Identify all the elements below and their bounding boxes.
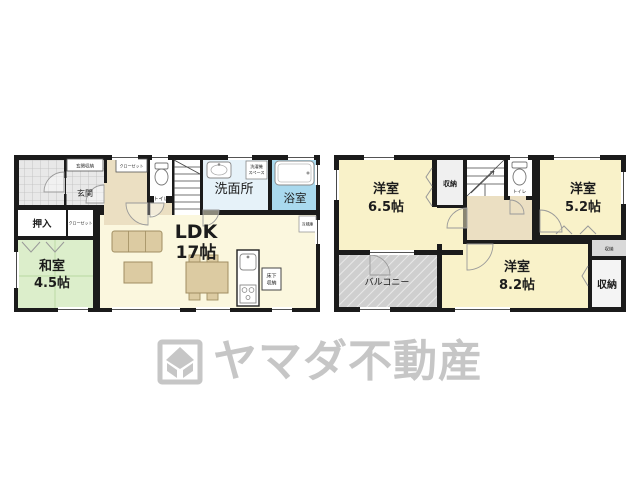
kitchen-counter: [237, 250, 259, 306]
room-6-5-name-label: 洋室: [373, 181, 399, 197]
underfloor-label-1: 床下: [266, 273, 276, 280]
ldk-name-label: LDK: [175, 221, 219, 243]
sink-fixture: [207, 162, 231, 178]
oshiire-label: 押入: [32, 218, 52, 230]
room-5-2-size-label: 5.2帖: [565, 199, 601, 215]
floor2-plan: 洋室 6.5帖 収納 トイレ 洋室 5.2帖 バルコニー 洋室 8.2帖 収納 …: [334, 155, 626, 312]
room-6-5-size-label: 6.5帖: [368, 199, 404, 215]
coffee-table: [124, 262, 152, 283]
floorplan-canvas: 玄関収納 玄関 クローゼット クローゼット 押入 和室 4.5帖 トイレ 洗面所…: [0, 0, 640, 480]
washer-space-label-1: 洗濯機: [250, 163, 263, 170]
floor1-plan: 玄関収納 玄関 クローゼット クローゼット 押入 和室 4.5帖 トイレ 洗面所…: [14, 155, 320, 312]
bathtub-fixture: [275, 161, 314, 185]
washitsu-closet-label: クローゼット: [69, 220, 93, 226]
washitsu-size-label: 4.5帖: [34, 275, 70, 291]
room-8-2-name-label: 洋室: [504, 259, 530, 275]
genkan-storage-label: 玄関収納: [76, 163, 94, 170]
closet-big-label: 収納: [597, 278, 617, 291]
toilet-fixture-1f: [155, 163, 168, 185]
closet-left-label: 収納: [443, 179, 457, 188]
hall-2f: [467, 196, 532, 240]
room-8-2-size-label: 8.2帖: [499, 277, 535, 293]
brand-logo: ヤマダ不動産: [0, 334, 640, 390]
washitsu-name-label: 和室: [39, 258, 65, 274]
yamada-logo-icon: [157, 339, 203, 385]
stairs-1f: [174, 160, 200, 215]
brand-name: ヤマダ不動産: [213, 340, 483, 384]
room-8-2: [442, 244, 588, 308]
underfloor-label-2: 収納: [266, 280, 276, 287]
closet-small-label: 収納: [605, 246, 614, 253]
hall-closet-label: クローゼット: [120, 163, 144, 169]
balcony-label: バルコニー: [365, 277, 410, 288]
genkan-label: 玄関: [77, 188, 93, 198]
toilet-label-1f: トイレ: [153, 197, 168, 203]
toilet-label-2f: トイレ: [513, 190, 527, 195]
sofa: [112, 231, 162, 252]
fridge-label: 冷蔵庫: [302, 222, 314, 227]
bath-label: 浴室: [284, 191, 307, 205]
room-5-2-name-label: 洋室: [570, 181, 596, 197]
washroom-label: 洗面所: [214, 182, 253, 197]
washer-space-label-2: スペース: [248, 170, 264, 175]
toilet-fixture-2f: [512, 162, 527, 185]
ldk-size-label: 17帖: [176, 242, 217, 263]
